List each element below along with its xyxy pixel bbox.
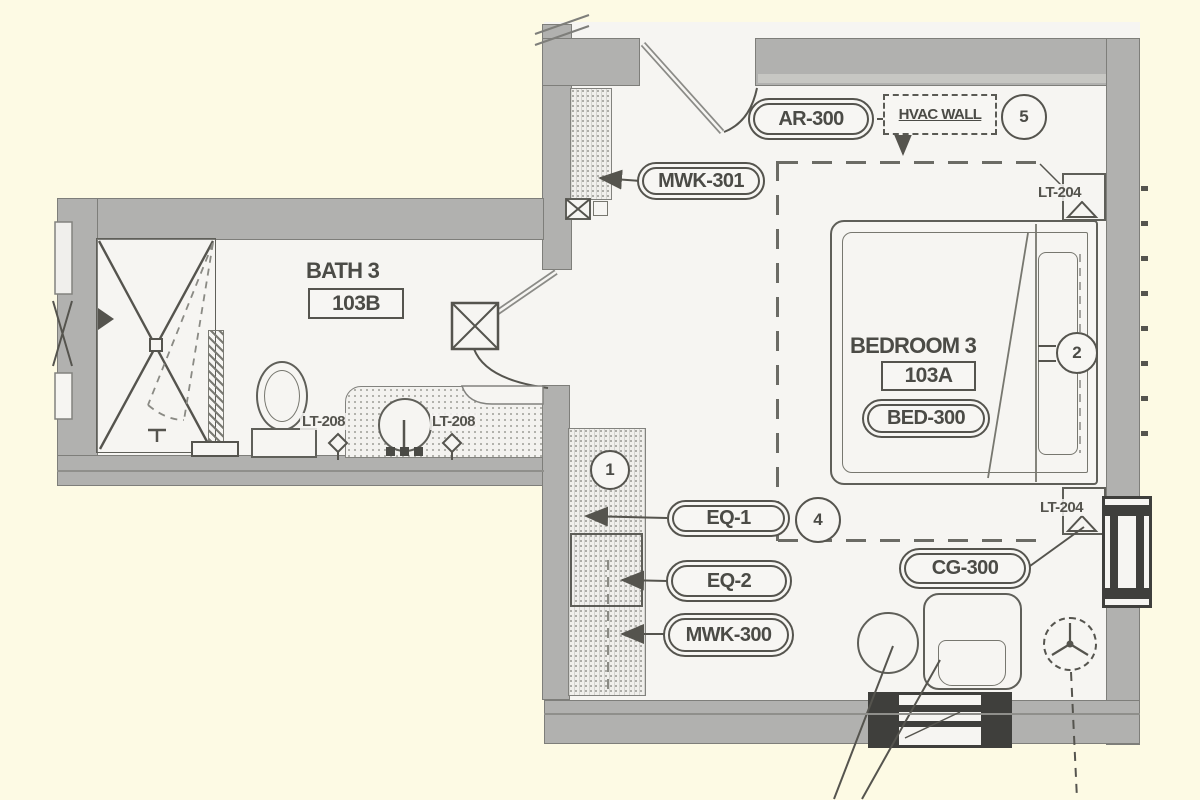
tag-lt-204-bottom-text: LT-204 [1040, 499, 1083, 516]
tag-cg-300-text: CG-300 [904, 553, 1026, 584]
wall-bath-west [57, 198, 98, 486]
keynote-2: 2 [1056, 332, 1098, 374]
hvac-wall-tag-text: HVAC WALL [899, 106, 982, 123]
armchair-seat [938, 640, 1006, 686]
tag-ar-300: AR-300 [748, 98, 874, 140]
equipment-box [570, 533, 643, 607]
keynote-2-text: 2 [1072, 343, 1081, 363]
window-south [868, 692, 1012, 748]
wall-bedroom-west-lower [542, 385, 570, 700]
room-label-bath-text: BATH 3 [306, 258, 379, 283]
tag-lt-208-right: LT-208 [430, 413, 477, 430]
tag-mwk-301-text: MWK-301 [642, 167, 760, 195]
shower [96, 238, 216, 453]
room-label-bath: BATH 3 [303, 259, 382, 283]
tag-eq-1-text: EQ-1 [672, 505, 785, 532]
tag-mwk-300: MWK-300 [663, 613, 794, 657]
hvac-zone-dash-top [778, 161, 1046, 164]
shower-glass-panel [208, 330, 224, 450]
room-number-bedroom-text: 103A [905, 364, 953, 388]
room-number-bath-text: 103B [332, 292, 380, 316]
tag-mwk-300-text: MWK-300 [668, 618, 789, 652]
room-label-bedroom: BEDROOM 3 [847, 334, 979, 358]
toilet-tank [251, 428, 317, 458]
keynote-1: 1 [590, 450, 630, 490]
tag-ar-300-text: AR-300 [753, 103, 869, 135]
window-east [1102, 496, 1152, 608]
keynote-4-text: 4 [813, 510, 822, 530]
tag-lt-204-top: LT-204 [1036, 184, 1083, 201]
tag-bed-300: BED-300 [862, 399, 990, 438]
hvac-zone-dash-left [776, 161, 779, 541]
wall-entry-stub-left [542, 38, 640, 86]
tag-cg-300: CG-300 [899, 548, 1031, 589]
tag-lt-208-left-text: LT-208 [302, 413, 345, 430]
tag-lt-208-left: LT-208 [300, 413, 347, 430]
room-number-bath: 103B [308, 288, 404, 319]
panel-small-box [593, 201, 608, 216]
closet-millwork-upper [570, 88, 612, 200]
tag-lt-204-bottom: LT-204 [1038, 499, 1085, 516]
tag-mwk-301: MWK-301 [637, 162, 765, 200]
hvac-wall-tag: HVAC WALL [883, 94, 997, 135]
wall-south [544, 700, 1140, 744]
tag-bed-300-text: BED-300 [867, 404, 985, 433]
floor-plan: BATH 3 103B BEDROOM 3 103A AR-300 MWK-30… [0, 0, 1200, 800]
keynote-1-text: 1 [605, 460, 614, 480]
keynote-5: 5 [1001, 94, 1047, 140]
electrical-panel [565, 198, 591, 220]
tag-lt-204-top-text: LT-204 [1038, 184, 1081, 201]
tag-lt-208-right-text: LT-208 [432, 413, 475, 430]
vanity-sink [378, 398, 432, 452]
wall-north-inner-band [758, 74, 1106, 83]
wall-bath-south [57, 455, 544, 486]
wall-east [1106, 38, 1140, 745]
tag-eq-2-text: EQ-2 [671, 565, 787, 597]
toilet-bowl [264, 370, 300, 422]
wall-bath-north [57, 198, 544, 240]
room-number-bedroom: 103A [881, 361, 976, 391]
tag-eq-1: EQ-1 [667, 500, 790, 537]
tag-eq-2: EQ-2 [666, 560, 792, 602]
room-label-bedroom-text: BEDROOM 3 [850, 333, 976, 358]
keynote-5-text: 5 [1019, 107, 1028, 127]
keynote-4: 4 [795, 497, 841, 543]
ceiling-fan [1043, 617, 1097, 671]
side-table [857, 612, 919, 674]
